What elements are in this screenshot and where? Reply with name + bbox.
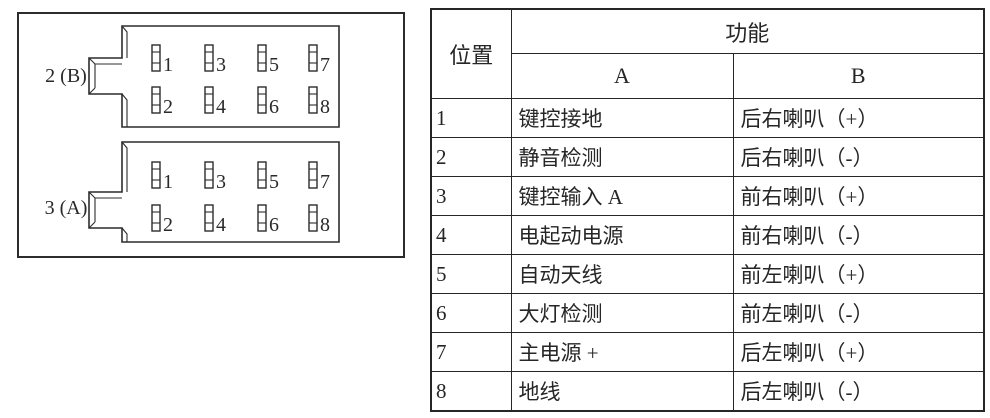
header-function: 功能: [511, 9, 984, 54]
header-row-function: 位置 功能: [431, 9, 984, 54]
pinout-table: 位置 功能 A B 1 键控接地 后右喇叭（+） 2 静音检测 后右喇叭（-） …: [430, 8, 985, 412]
position-cell: 4: [431, 216, 511, 255]
position-cell: 2: [431, 138, 511, 177]
connector-diagram-panel: 2 (B) 1 3 5: [17, 12, 405, 258]
pin: 4: [205, 87, 226, 118]
function-a-cell: 地线: [511, 372, 733, 412]
function-b-cell: 后右喇叭（-）: [733, 138, 984, 177]
pin-number: 5: [269, 54, 279, 76]
function-a-cell: 电起动电源: [511, 216, 733, 255]
pin: 5: [258, 162, 279, 193]
pin: 6: [258, 205, 279, 236]
pin: 4: [205, 205, 226, 236]
pin: 1: [152, 45, 173, 76]
pin: 6: [258, 87, 279, 118]
connector-3a: 3 (A) 1 3 5: [45, 142, 339, 242]
header-col-b: B: [733, 54, 984, 99]
function-b-cell: 后左喇叭（-）: [733, 372, 984, 412]
function-a-cell: 大灯检测: [511, 294, 733, 333]
function-b-cell: 前右喇叭（-）: [733, 216, 984, 255]
header-col-a: A: [511, 54, 733, 99]
pin-number: 5: [269, 171, 279, 193]
table-row: 7 主电源 + 后左喇叭（+）: [431, 333, 984, 372]
pin: 2: [152, 205, 173, 236]
table-row: 4 电起动电源 前右喇叭（-）: [431, 216, 984, 255]
function-b-cell: 后左喇叭（+）: [733, 333, 984, 372]
pin-number: 1: [163, 54, 173, 76]
manual-page: 2 (B) 1 3 5: [0, 0, 990, 418]
position-cell: 3: [431, 177, 511, 216]
table-row: 3 键控输入 A 前右喇叭（+）: [431, 177, 984, 216]
pin: 3: [205, 45, 226, 76]
header-position: 位置: [431, 9, 511, 99]
position-cell: 1: [431, 99, 511, 138]
position-cell: 7: [431, 333, 511, 372]
pin: 2: [152, 87, 173, 118]
table-row: 6 大灯检测 前左喇叭（-）: [431, 294, 984, 333]
position-cell: 8: [431, 372, 511, 412]
pin: 8: [309, 87, 330, 118]
pin-number: 7: [320, 171, 330, 193]
pin-number: 3: [216, 171, 226, 193]
position-cell: 6: [431, 294, 511, 333]
connector-label: 2 (B): [45, 65, 87, 87]
connector-2b: 2 (B) 1 3 5: [45, 26, 339, 127]
function-a-cell: 自动天线: [511, 255, 733, 294]
pin-number: 8: [320, 96, 330, 118]
pin-number: 6: [269, 214, 279, 236]
pin-number: 6: [269, 96, 279, 118]
pin-number: 7: [320, 54, 330, 76]
pin: 3: [205, 162, 226, 193]
table-row: 2 静音检测 后右喇叭（-）: [431, 138, 984, 177]
function-a-cell: 主电源 +: [511, 333, 733, 372]
pin: 8: [309, 205, 330, 236]
pin: 7: [309, 162, 330, 193]
pin-number: 4: [216, 214, 226, 236]
function-b-cell: 前左喇叭（+）: [733, 255, 984, 294]
pin-number: 2: [163, 96, 173, 118]
position-cell: 5: [431, 255, 511, 294]
pin-number: 8: [320, 214, 330, 236]
pin-number: 1: [163, 171, 173, 193]
pin: 1: [152, 162, 173, 193]
function-b-cell: 前右喇叭（+）: [733, 177, 984, 216]
function-a-cell: 静音检测: [511, 138, 733, 177]
pin: 5: [258, 45, 279, 76]
function-b-cell: 后右喇叭（+）: [733, 99, 984, 138]
function-a-cell: 键控接地: [511, 99, 733, 138]
header-row-ab: A B: [431, 54, 984, 99]
table-row: 5 自动天线 前左喇叭（+）: [431, 255, 984, 294]
function-b-cell: 前左喇叭（-）: [733, 294, 984, 333]
table-row: 8 地线 后左喇叭（-）: [431, 372, 984, 412]
pin-number: 4: [216, 96, 226, 118]
pin-number: 2: [163, 214, 173, 236]
pin: 7: [309, 45, 330, 76]
pin-number: 3: [216, 54, 226, 76]
table-row: 1 键控接地 后右喇叭（+）: [431, 99, 984, 138]
function-a-cell: 键控输入 A: [511, 177, 733, 216]
connector-label: 3 (A): [45, 197, 88, 219]
